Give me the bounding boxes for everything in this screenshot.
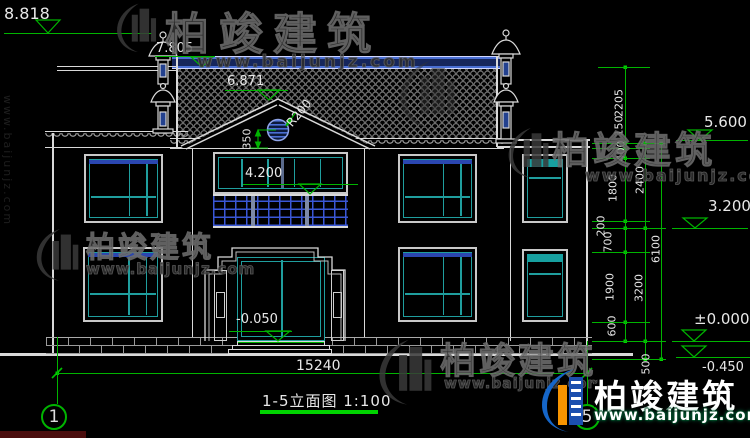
level-balcony: 4.200 [245,166,282,181]
red-strip [0,431,86,438]
ext-line [592,322,650,323]
ext-line [592,359,666,360]
site-logo-url: www.baijunjz.com [594,406,750,424]
dim-middle-3200: 3200 [633,274,646,302]
grid-line-1 [57,337,58,404]
dim-inner-700: 700 [602,232,615,253]
level-entrance: -0.050 [236,312,278,327]
dim-inner-600: 600 [606,316,619,337]
level-finial-top: 8.818 [4,4,50,23]
ext-line [592,341,666,342]
level-line-4200 [243,184,358,185]
dim-inner-2205: 2205 [613,89,626,117]
level-line-m0450 [676,357,750,358]
level-gable-peak: 6.871 [227,74,264,89]
level-first-floor: ±0.000 [694,310,750,328]
watermark-logo-icon [506,124,552,178]
watermark-url-vertical: www.baijunjz.com [1,95,14,226]
grid-bubble-1: 1 [41,404,67,430]
watermark-logo-icon [376,330,436,410]
elevation-drawing-canvas: 8.818 7.805 6.871 4.200 -0.050 5.600 3.2… [0,0,750,438]
drawing-title: 1-5立面图 1:100 [262,390,392,411]
dim-tick-squares [56,66,664,376]
watermark-url: www.baijunjz.com [585,166,750,185]
site-logo-icon [536,363,594,437]
level-line-m0050 [229,331,292,332]
dim-inner-1900: 1900 [604,273,617,301]
watermark-logo-icon [396,56,460,128]
watermark-url: www.baijunjz.com [197,52,419,72]
level-line-0000 [672,341,750,342]
gable-offset-annotation: 350 [241,129,254,150]
grid-bubble-1-label: 1 [49,407,60,427]
level-line-3200 [672,228,748,229]
title-underline [260,410,378,414]
overall-width-dim: 15240 [296,358,341,374]
watermark-logo-icon [112,0,162,52]
ext-line [598,67,650,68]
level-line-6871 [225,90,288,91]
level-second-floor: 3.200 [708,197,750,215]
dim-outer-6100: 6100 [650,235,663,263]
watermark-logo-icon [34,225,82,281]
watermark-url: www.baijunjz.com [86,260,255,278]
